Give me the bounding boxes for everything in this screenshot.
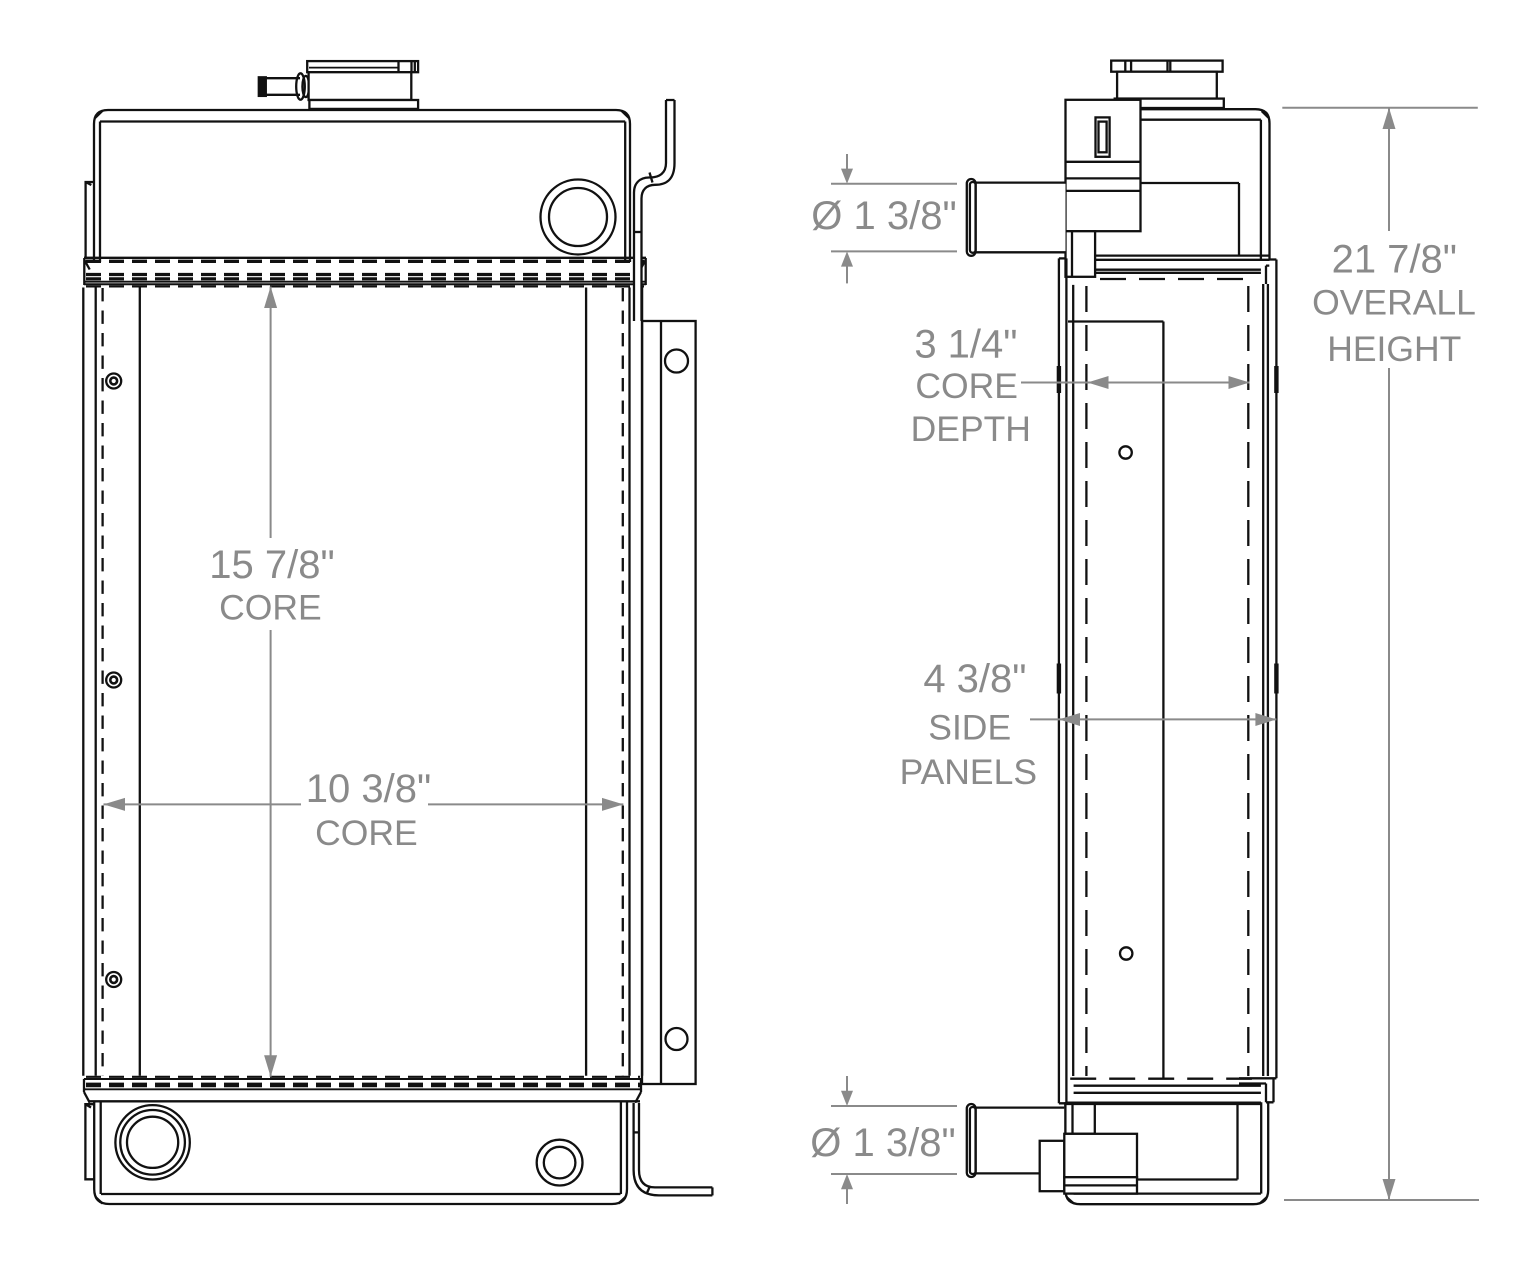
svg-text:10 3/8": 10 3/8" — [306, 767, 431, 811]
svg-text:DEPTH: DEPTH — [911, 409, 1031, 449]
svg-text:SIDE: SIDE — [928, 707, 1011, 747]
svg-text:CORE: CORE — [219, 588, 322, 628]
svg-text:21 7/8": 21 7/8" — [1332, 238, 1457, 282]
svg-text:Ø 1 3/8": Ø 1 3/8" — [811, 194, 956, 238]
svg-text:CORE: CORE — [915, 366, 1018, 406]
svg-text:OVERALL: OVERALL — [1312, 282, 1476, 322]
svg-text:CORE: CORE — [315, 813, 418, 853]
svg-text:HEIGHT: HEIGHT — [1327, 329, 1461, 369]
svg-text:3 1/4": 3 1/4" — [914, 323, 1017, 367]
svg-text:PANELS: PANELS — [900, 752, 1037, 792]
svg-text:4 3/8": 4 3/8" — [923, 657, 1026, 701]
svg-text:Ø 1 3/8": Ø 1 3/8" — [810, 1121, 955, 1165]
svg-text:15 7/8": 15 7/8" — [209, 543, 334, 587]
